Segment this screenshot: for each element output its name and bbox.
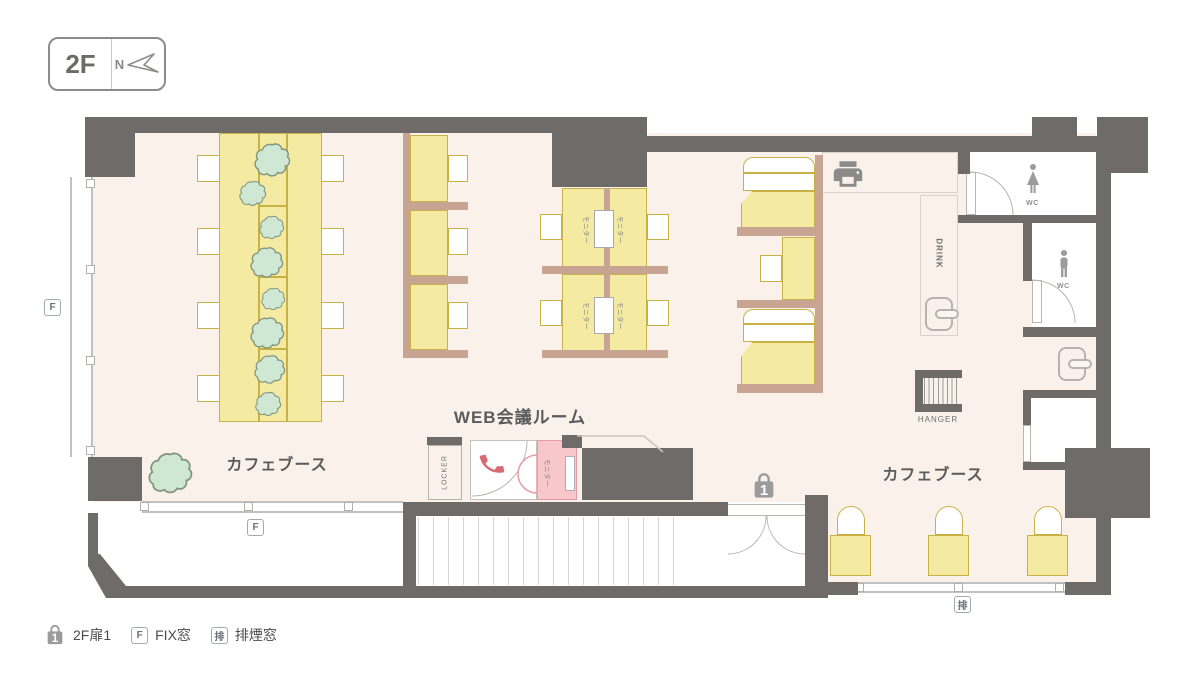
printer-icon	[830, 157, 866, 191]
wall	[85, 117, 647, 133]
fix-window-left	[70, 177, 93, 457]
sink-icon	[1058, 346, 1092, 382]
wall	[1023, 462, 1096, 470]
wall	[647, 136, 1097, 152]
stool-seat	[928, 535, 969, 576]
chair	[321, 375, 344, 402]
chair	[540, 214, 562, 240]
stool-back	[837, 506, 865, 535]
fix-window-badge: F	[44, 299, 61, 316]
stool-seat	[1027, 535, 1068, 576]
legend: 1 2F扉1 F FIX窓 排 排煙窓	[44, 622, 277, 648]
table-line	[286, 133, 288, 422]
floor-badge: 2F N	[48, 37, 166, 91]
cafe-left-label: カフェブース	[202, 451, 352, 475]
booth-desk	[410, 284, 448, 350]
wall	[828, 582, 858, 595]
chair	[197, 228, 220, 255]
legend-door: 1 2F扉1	[44, 622, 111, 648]
wc-female-door	[966, 172, 976, 215]
partition	[737, 384, 823, 393]
booth-table	[741, 342, 815, 385]
chair	[197, 302, 220, 329]
chair	[540, 300, 562, 326]
wall	[958, 215, 1096, 223]
wc-female-label: WC	[1026, 200, 1039, 207]
chair	[448, 155, 468, 182]
booth-sofa	[743, 157, 815, 191]
wall	[403, 586, 828, 598]
partition	[403, 276, 468, 284]
hanger-label: HANGER	[910, 415, 966, 424]
monitor	[565, 456, 575, 491]
monitor	[594, 297, 614, 334]
north-label: N	[115, 57, 124, 72]
monitor-label: モニター	[582, 215, 592, 245]
male-icon	[1056, 249, 1072, 281]
smoke-badge: 排	[211, 627, 228, 644]
partition	[737, 300, 817, 308]
stool-back	[1034, 506, 1062, 535]
floor-plan-canvas: F F 排 モニター モニター モニター モニター	[0, 0, 1200, 681]
locker-label: LOCKER	[442, 451, 449, 495]
monitor-desk	[609, 274, 647, 351]
monitor-label: モニター	[616, 301, 626, 331]
chair	[647, 214, 669, 240]
wall	[562, 435, 582, 448]
wall	[88, 457, 142, 501]
wall	[552, 133, 647, 187]
monitor-label: モニター	[616, 215, 626, 245]
partition	[403, 350, 468, 358]
wc-male-label: WC	[1057, 283, 1070, 290]
north-indicator: N	[112, 39, 164, 89]
storage-door	[1023, 425, 1031, 462]
partition	[403, 202, 468, 210]
legend-door-label: 2F扉1	[73, 625, 111, 645]
stair-treads	[418, 517, 679, 585]
chair	[321, 155, 344, 182]
monitor-desk	[609, 188, 647, 267]
phone-icon	[475, 447, 508, 480]
wall	[1032, 117, 1077, 152]
stool-back	[935, 506, 963, 535]
wall	[85, 117, 135, 177]
chair	[760, 255, 782, 282]
wall	[1065, 582, 1111, 595]
wall	[958, 150, 970, 174]
fix-window-bottom	[142, 501, 403, 513]
sink-icon	[925, 296, 959, 332]
booth-desk	[410, 135, 448, 202]
chair	[647, 300, 669, 326]
chair	[321, 302, 344, 329]
cafe-right-label: カフェブース	[858, 461, 1008, 485]
floor-number: 2F	[50, 39, 112, 89]
hanger-rack	[924, 378, 960, 404]
wall	[805, 495, 828, 598]
wall	[1065, 448, 1150, 518]
monitor-label: モニター	[582, 301, 592, 331]
legend-smoke: 排 排煙窓	[211, 625, 277, 645]
web-meeting-label: WEB会議ルーム	[450, 403, 590, 428]
chair	[448, 228, 468, 255]
wall	[582, 448, 693, 500]
chair	[321, 228, 344, 255]
partition	[403, 133, 410, 358]
chair	[197, 375, 220, 402]
booth-table	[741, 191, 815, 229]
entrance-door	[728, 504, 805, 516]
wc-male-door	[1032, 280, 1042, 323]
partition	[737, 227, 817, 236]
monitor	[594, 210, 614, 248]
fix-window-bottom-badge: F	[247, 519, 264, 536]
wall	[1023, 390, 1096, 398]
booth-desk	[410, 210, 448, 276]
wall	[403, 502, 728, 516]
wall	[1023, 398, 1031, 425]
smoke-window-badge: 排	[954, 596, 971, 613]
legend-fix-label: FIX窓	[155, 625, 191, 645]
partition	[542, 350, 668, 358]
legend-fix: F FIX窓	[131, 625, 191, 645]
door-lock-icon: 1	[750, 470, 778, 502]
legend-smoke-label: 排煙窓	[235, 625, 277, 645]
partition	[815, 155, 823, 390]
wall	[1023, 223, 1032, 281]
stool-seat	[830, 535, 871, 576]
female-icon	[1023, 163, 1043, 197]
wall	[88, 513, 98, 560]
cafe-long-table	[219, 133, 322, 422]
chair	[197, 155, 220, 182]
chair	[448, 302, 468, 329]
table-line	[258, 133, 260, 422]
drink-label: DRINK	[935, 234, 944, 274]
monitor-label: モニター	[543, 458, 553, 488]
partition	[542, 266, 668, 274]
wall	[1023, 327, 1096, 337]
wall	[1096, 152, 1111, 595]
north-arrow-icon	[127, 53, 161, 75]
booth-sofa	[743, 309, 815, 342]
booth-table	[782, 237, 815, 300]
wall	[108, 586, 403, 598]
wall	[403, 502, 416, 598]
lock-icon: 1	[44, 622, 66, 648]
fix-badge: F	[131, 627, 148, 644]
